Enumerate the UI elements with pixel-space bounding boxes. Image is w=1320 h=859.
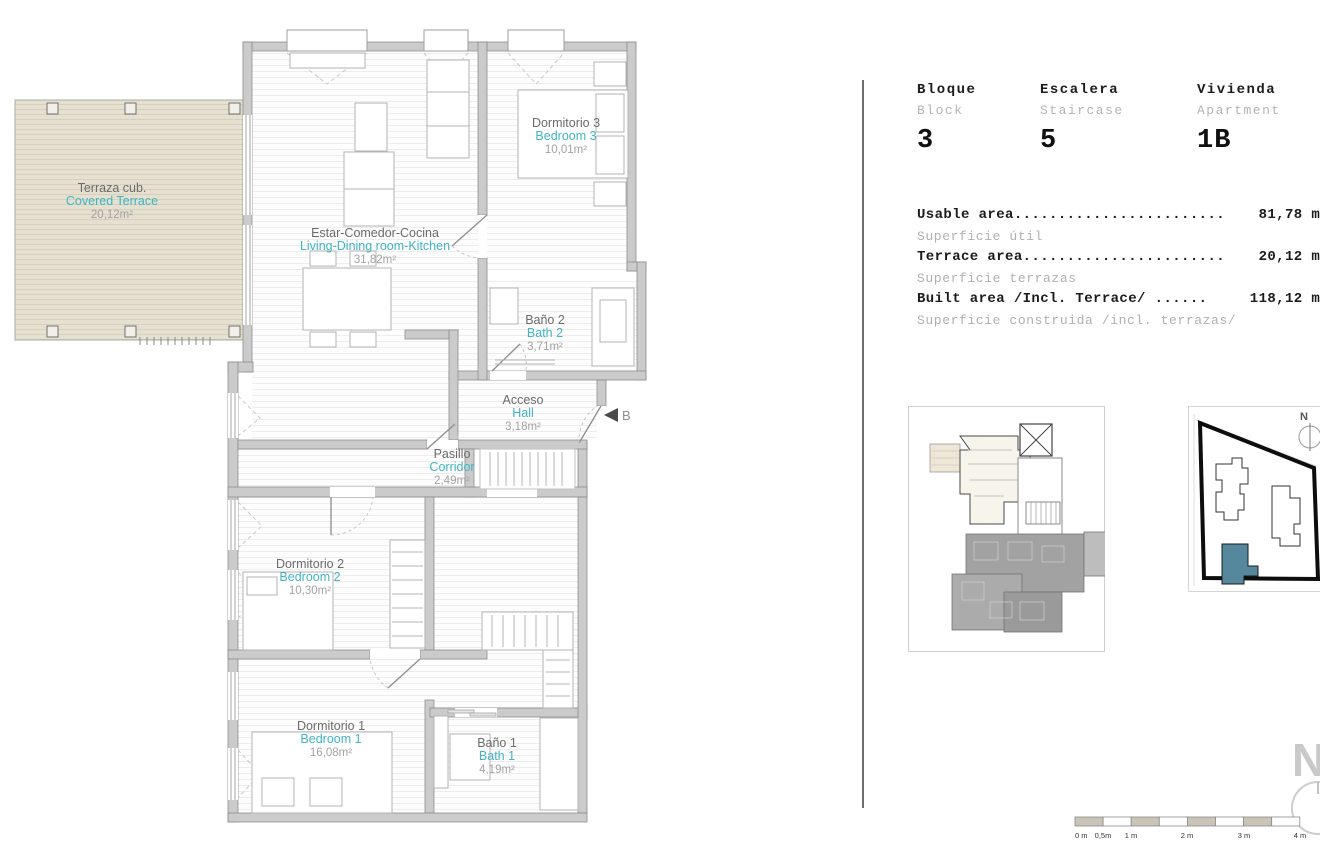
apartment-label-es: Vivienda — [1197, 82, 1317, 98]
entrance-marker: B — [604, 408, 631, 423]
top-windows — [287, 30, 564, 51]
label-bedroom2-en: Bedroom 2 — [279, 570, 340, 584]
staircase-label-es: Escalera — [1040, 82, 1160, 98]
block-value: 3 — [917, 126, 1037, 156]
block-label-es: Bloque — [917, 82, 1037, 98]
scale-1m: 1 m — [1125, 831, 1138, 840]
label-bath1-en: Bath 1 — [479, 749, 515, 763]
scale-0m: 0 m — [1075, 831, 1088, 840]
label-bedroom1-en: Bedroom 1 — [300, 732, 361, 746]
terrace-area-label: Terrace area....................... — [917, 249, 1225, 265]
label-living-en: Living-Dining room-Kitchen — [300, 239, 450, 253]
label-bedroom3-es: Dormitorio 3 — [532, 116, 600, 130]
terrace-deck — [15, 100, 248, 345]
label-bedroom3-area: 10,01m² — [545, 144, 587, 156]
label-hall-es: Acceso — [503, 393, 544, 407]
usable-area-label-es: Superficie útil — [917, 229, 1320, 244]
label-corridor-es: Pasillo — [434, 447, 471, 461]
scale-3m: 3 m — [1238, 831, 1251, 840]
staircase-value: 5 — [1040, 126, 1160, 156]
terrace-area-row: Terrace area....................... 20,1… — [917, 249, 1320, 265]
apartment-label-en: Apartment — [1197, 103, 1317, 118]
built-area-row: Built area /Incl. Terrace/ ...... 118,12… — [917, 291, 1320, 307]
label-terrace-area: 20,12m² — [91, 209, 133, 221]
label-living-es: Estar-Comedor-Cocina — [311, 226, 439, 240]
label-corridor-area: 2,49m² — [434, 475, 470, 487]
staircase-label-en: Staircase — [1040, 103, 1160, 118]
label-bath2-area: 3,71m² — [527, 341, 563, 353]
label-hall-area: 3,18m² — [505, 421, 541, 433]
terrace-area-label-es: Superficie terrazas — [917, 271, 1320, 286]
key-plan-tower — [1018, 458, 1062, 544]
label-bath1-area: 4,19m² — [479, 764, 515, 776]
location-plan: N — [1188, 406, 1320, 592]
header-block: Bloque Block 3 — [917, 82, 1037, 156]
entrance-letter: B — [622, 408, 631, 423]
header-staircase: Escalera Staircase 5 — [1040, 82, 1160, 156]
header-apartment: Vivienda Apartment 1B — [1197, 82, 1317, 156]
usable-area-row: Usable area........................ 81,7… — [917, 207, 1320, 223]
floor-plan: B Terraza cub. Covered Terrace 20,12m² E… — [0, 0, 868, 859]
key-plan — [908, 406, 1105, 652]
label-corridor-en: Corridor — [429, 460, 474, 474]
label-bedroom3-en: Bedroom 3 — [535, 129, 596, 143]
compass-north-label: N — [1292, 734, 1320, 786]
label-bedroom2-area: 10,30m² — [289, 585, 331, 597]
label-bedroom2-es: Dormitorio 2 — [276, 557, 344, 571]
label-bedroom1-es: Dormitorio 1 — [297, 719, 365, 733]
terrace-area-value: 20,12 m² — [1259, 249, 1320, 265]
usable-area-value: 81,78 m² — [1259, 207, 1320, 223]
site-north-label: N — [1300, 411, 1308, 423]
scale-bar: 0 m 0,5m 1 m 2 m 3 m 4 m — [1073, 814, 1313, 844]
floorplan-page: { "floor_plan": { "rooms": [ {"id":"terr… — [0, 0, 1320, 859]
scale-4m: 4 m — [1294, 831, 1307, 840]
scale-2m: 2 m — [1181, 831, 1194, 840]
built-area-label-es: Superficie construida /incl. terrazas/ — [917, 313, 1320, 328]
apartment-value: 1B — [1197, 126, 1317, 156]
label-terrace-en: Covered Terrace — [66, 194, 158, 208]
scale-05m: 0,5m — [1095, 831, 1112, 840]
label-terrace-es: Terraza cub. — [78, 181, 147, 195]
label-bedroom1-area: 16,08m² — [310, 747, 352, 759]
label-bath2-es: Baño 2 — [525, 313, 565, 327]
built-area-value: 118,12 m² — [1250, 291, 1320, 307]
label-bath1-es: Baño 1 — [477, 736, 517, 750]
corridor-closet — [480, 449, 575, 489]
block-label-en: Block — [917, 103, 1037, 118]
usable-area-label: Usable area........................ — [917, 207, 1225, 223]
built-area-label: Built area /Incl. Terrace/ ...... — [917, 291, 1207, 307]
label-hall-en: Hall — [512, 406, 534, 420]
label-living-area: 31,82m² — [354, 254, 396, 266]
label-bath2-en: Bath 2 — [527, 326, 563, 340]
panel-divider — [862, 80, 864, 808]
